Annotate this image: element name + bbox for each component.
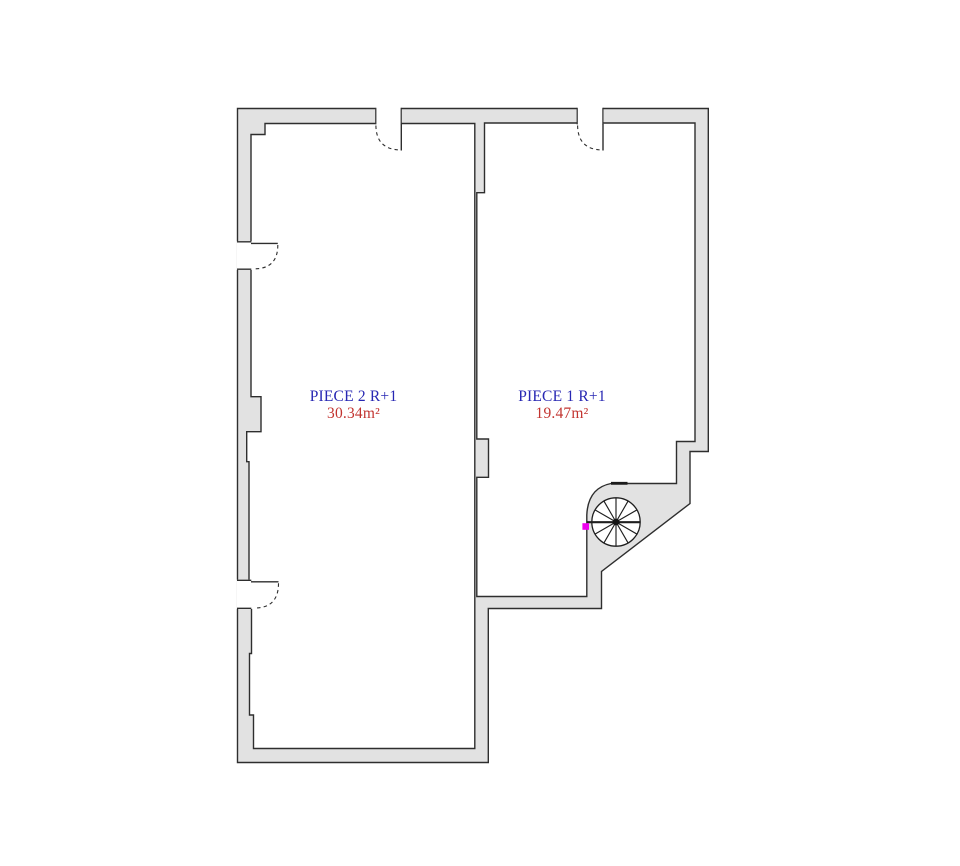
door-opening [577,107,603,126]
door-swing-icon [578,126,603,151]
walls [238,109,709,763]
door-piece2-left-upper [237,241,278,270]
door-opening [237,241,253,270]
door-swing-icon [255,245,278,269]
floor-plan: PIECE 2 R+1 30.34m² PIECE 1 R+1 19.47m² [0,0,960,866]
door-swing-icon [376,126,401,151]
door-opening [237,580,253,609]
door-opening [375,107,401,126]
door-piece2-top [375,107,401,151]
door-piece1-top [577,107,603,151]
position-marker-dot [582,523,589,530]
floor-plan-drawing [0,0,960,866]
stair-newel-hub [613,519,620,526]
door-piece2-left-lower [237,580,279,609]
door-swing-icon [255,583,279,608]
